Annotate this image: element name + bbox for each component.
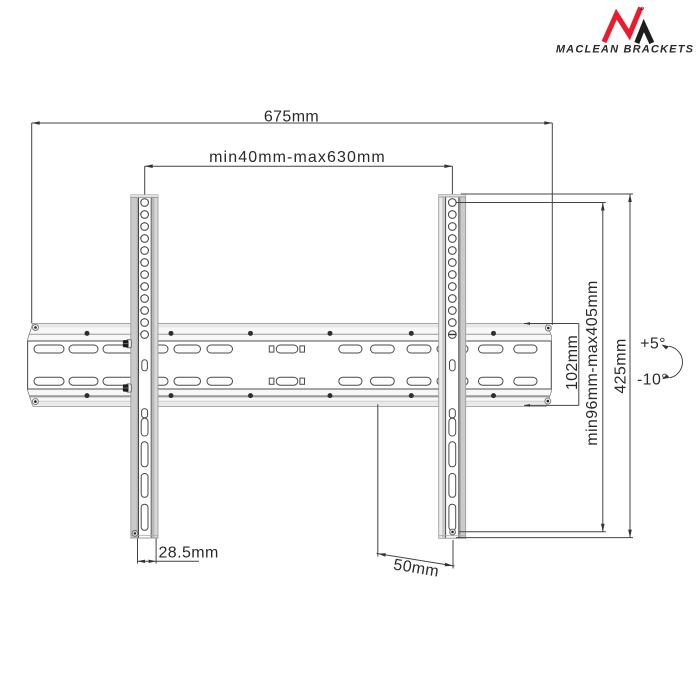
svg-text:425mm: 425mm: [613, 338, 630, 393]
svg-text:28.5mm: 28.5mm: [159, 545, 219, 562]
svg-text:min96mm-max405mm: min96mm-max405mm: [584, 280, 601, 446]
svg-text:+5°: +5°: [640, 336, 666, 353]
svg-text:MACLEAN BRACKETS: MACLEAN BRACKETS: [556, 44, 694, 56]
svg-text:-10°: -10°: [637, 372, 668, 389]
svg-text:min40mm-max630mm: min40mm-max630mm: [209, 149, 386, 166]
svg-text:675mm: 675mm: [264, 108, 319, 125]
svg-text:102mm: 102mm: [564, 335, 581, 390]
